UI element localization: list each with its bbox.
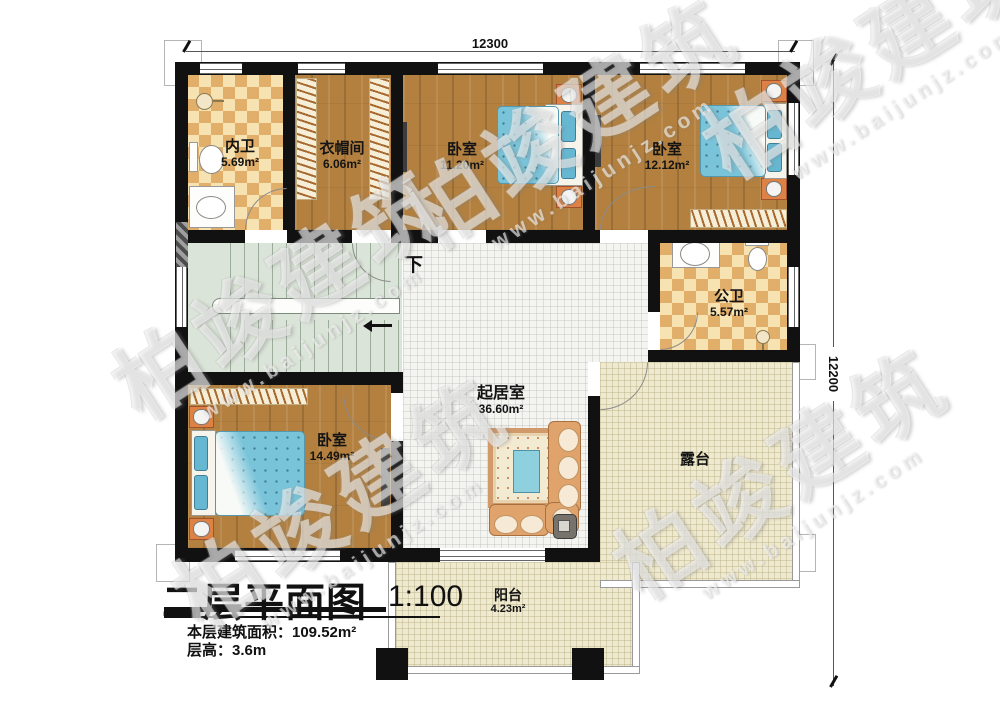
wall-segment	[588, 396, 600, 562]
pillow-symbol	[194, 436, 208, 471]
wall-segment	[391, 372, 403, 393]
window-symbol	[438, 63, 543, 74]
terrace-parapet	[792, 362, 800, 588]
stair-direction-arrow	[372, 324, 392, 327]
sofa-cushion	[558, 428, 579, 452]
side-table-symbol	[553, 514, 577, 539]
wall-segment	[287, 230, 352, 243]
wall-segment	[583, 62, 595, 230]
wardrobe-rail-symbol	[190, 388, 308, 405]
coffee-table-symbol	[513, 450, 540, 493]
stair-treads	[230, 320, 402, 372]
sofa-cushion	[494, 515, 518, 534]
nightstand-symbol	[556, 84, 582, 106]
wall-segment	[391, 62, 403, 230]
room-label-bedroom-top: 卧室 11.20m²	[440, 142, 484, 172]
shower-head-symbol	[196, 93, 213, 110]
wardrobe-rail-symbol	[296, 78, 317, 200]
room-label-bedroom-bottom: 卧室 14.49m²	[310, 433, 355, 463]
shower-head-symbol	[756, 330, 770, 344]
wall-segment	[175, 372, 403, 385]
stair-handrail	[212, 298, 400, 314]
wall-segment	[391, 441, 403, 562]
room-label-balcony: 阳台 4.23m²	[491, 588, 526, 615]
room-label-living-room: 起居室 36.60m²	[477, 385, 525, 416]
sink-symbol	[680, 242, 710, 266]
plan-scale: 1:100	[388, 580, 463, 614]
window-symbol	[298, 63, 345, 74]
pillow-symbol	[194, 475, 208, 510]
tv-symbol	[381, 448, 390, 506]
floor-plan-canvas: 内卫 5.69m² 衣帽间 6.06m² 卧室 11.20m² 卧室 12.12…	[0, 0, 1000, 706]
nightstand-symbol	[556, 186, 582, 208]
bed-symbol	[700, 105, 766, 177]
flue-hatch	[176, 222, 188, 268]
window-symbol	[200, 63, 242, 74]
wall-segment	[391, 230, 438, 243]
dimension-line-top	[186, 51, 795, 52]
window-symbol	[788, 103, 799, 175]
wall-segment	[648, 230, 660, 312]
nightstand-symbol	[189, 518, 214, 540]
stair-direction-arrowhead	[363, 320, 372, 332]
pillow-symbol	[561, 111, 576, 142]
window-symbol	[788, 267, 799, 327]
wardrobe-rail-symbol	[690, 209, 787, 228]
terrace-parapet	[600, 580, 800, 588]
sofa-cushion	[558, 456, 579, 480]
nightstand-symbol	[761, 178, 787, 200]
shower-arm-symbol	[213, 100, 224, 102]
wall-segment	[486, 230, 600, 243]
sofa-cushion	[558, 484, 579, 508]
plan-title: 二层平面图	[162, 570, 367, 628]
dimension-top-value: 12300	[455, 36, 525, 51]
title-rule-thin	[164, 616, 440, 618]
sofa-cushion	[520, 515, 544, 534]
room-label-inner-bath: 内卫 5.69m²	[221, 139, 259, 169]
living-room-floor	[403, 243, 648, 362]
bed-symbol	[215, 431, 305, 516]
nightstand-symbol	[761, 80, 787, 102]
column	[572, 648, 604, 680]
sliding-door-symbol	[440, 550, 545, 561]
title-rule-thick	[164, 607, 386, 612]
wardrobe-rail-symbol	[369, 78, 390, 200]
floor-height-note: 层高：3.6m	[187, 639, 266, 660]
window-symbol	[640, 63, 745, 74]
toilet-symbol	[748, 247, 767, 271]
room-label-public-bath: 公卫 5.57m²	[710, 289, 748, 319]
room-label-cloakroom: 衣帽间 6.06m²	[319, 141, 364, 171]
column	[376, 648, 408, 680]
pillow-symbol	[561, 148, 576, 179]
toilet-tank-symbol	[189, 142, 198, 172]
sink-symbol	[196, 196, 226, 219]
window-symbol	[176, 267, 187, 327]
pillow-symbol	[767, 143, 782, 172]
wall-segment	[648, 350, 800, 362]
nightstand-symbol	[189, 406, 214, 428]
wall-segment	[545, 548, 600, 562]
stairs-down-label: 下	[404, 250, 423, 277]
room-label-terrace: 露台	[680, 452, 710, 469]
room-label-bedroom-right: 卧室 12.12m²	[645, 142, 690, 172]
dimension-right-value: 12200	[825, 347, 841, 401]
window-symbol	[235, 550, 340, 561]
pillow-symbol	[767, 110, 782, 139]
wall-segment	[655, 230, 800, 243]
bed-symbol	[497, 106, 559, 184]
balcony-parapet	[632, 562, 640, 674]
